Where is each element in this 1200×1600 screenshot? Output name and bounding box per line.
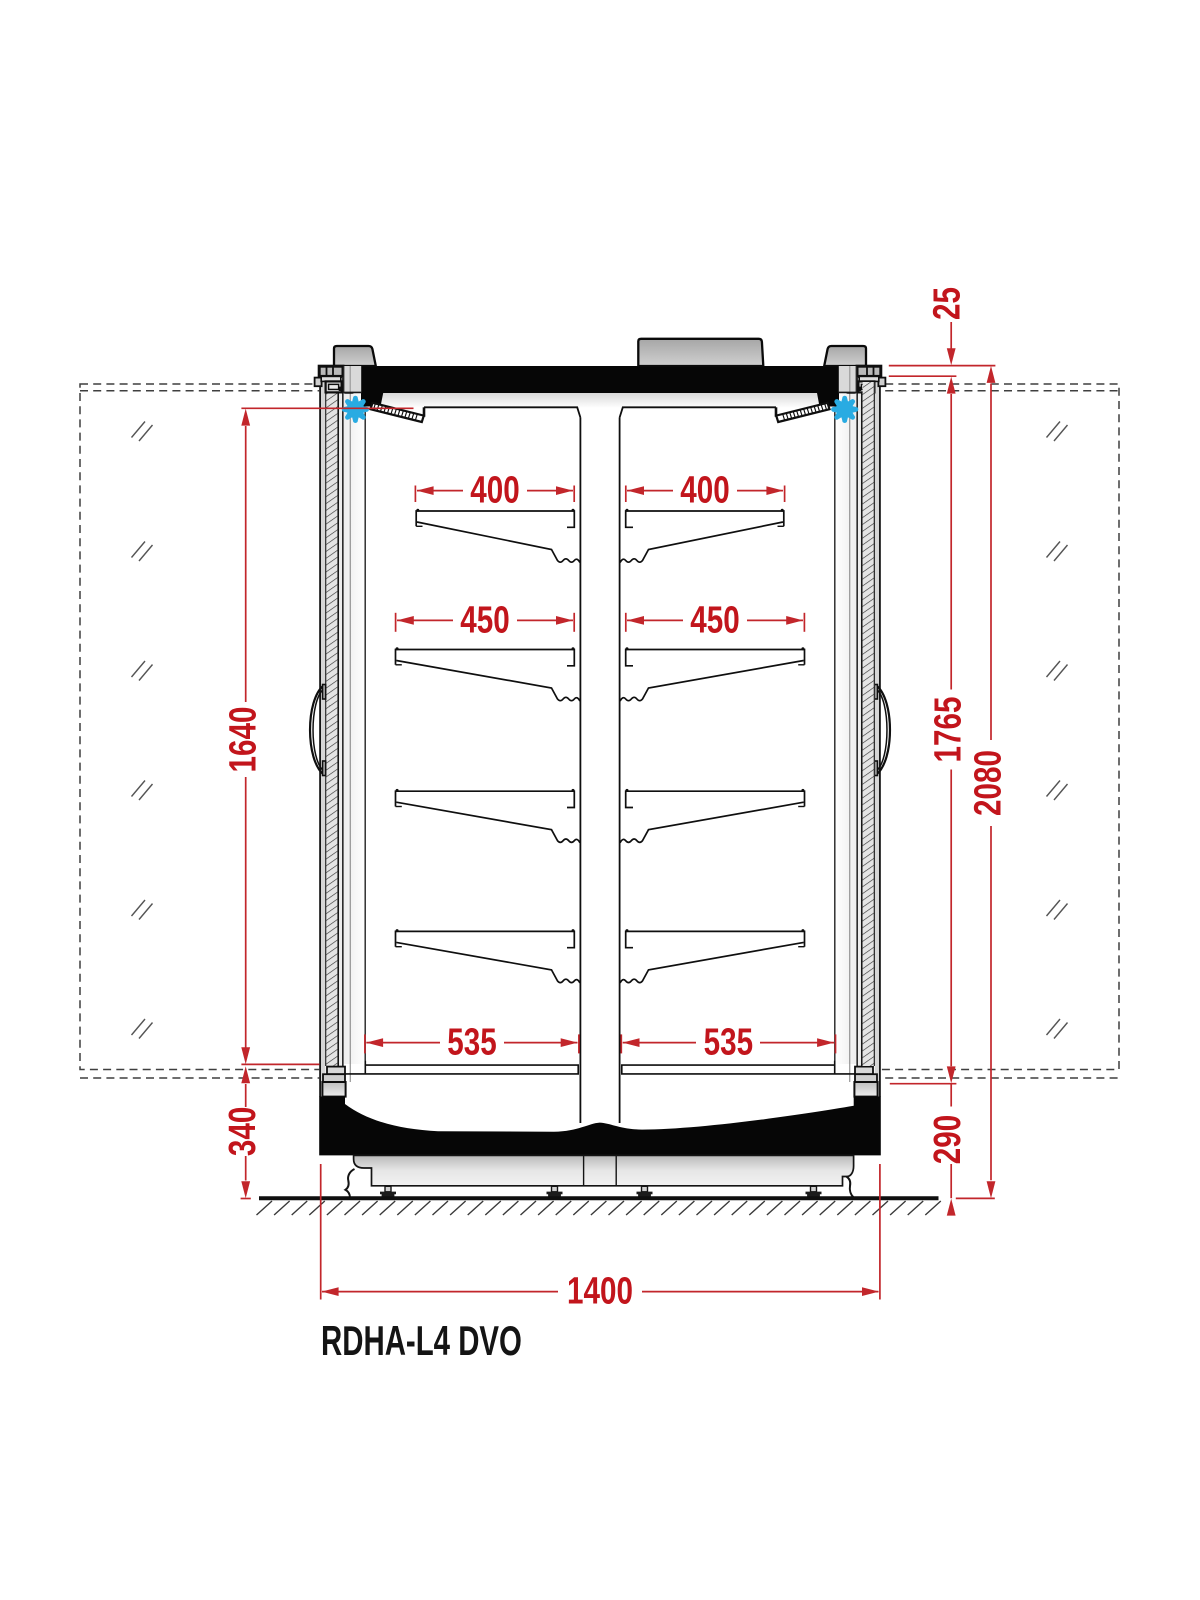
svg-text:1765: 1765 (927, 697, 969, 763)
svg-text:25: 25 (926, 287, 968, 320)
svg-text:400: 400 (470, 469, 519, 511)
svg-text:1640: 1640 (222, 707, 264, 773)
svg-text:1400: 1400 (567, 1270, 633, 1312)
svg-text:535: 535 (447, 1021, 496, 1063)
svg-text:450: 450 (690, 599, 739, 641)
svg-text:400: 400 (680, 469, 729, 511)
svg-text:2080: 2080 (967, 750, 1009, 816)
svg-text:RDHA-L4 DVO: RDHA-L4 DVO (321, 1317, 522, 1365)
svg-text:450: 450 (460, 599, 509, 641)
svg-text:535: 535 (704, 1021, 753, 1063)
svg-text:340: 340 (222, 1107, 264, 1156)
svg-text:290: 290 (926, 1115, 968, 1164)
